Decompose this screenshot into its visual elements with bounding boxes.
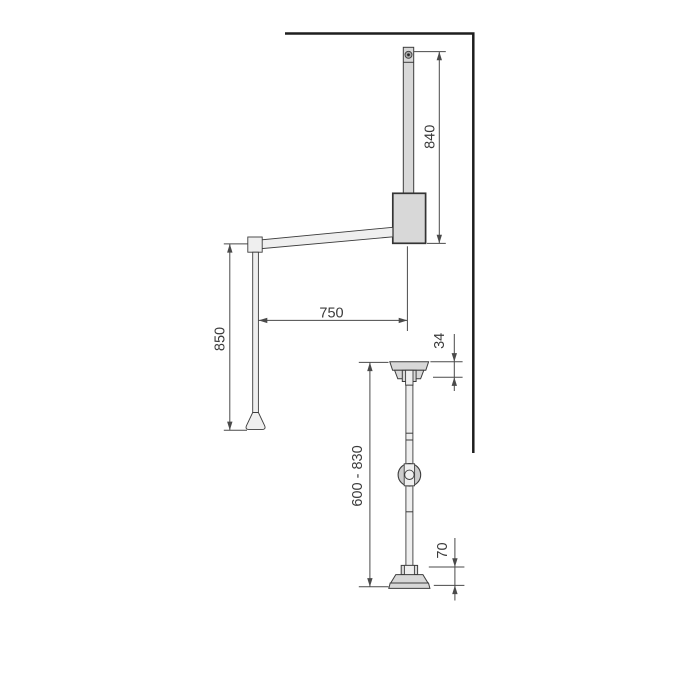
dim-840-arrow-up xyxy=(437,52,442,61)
dim-70-arrow-up xyxy=(452,585,457,594)
dim-34-arrow-down xyxy=(452,353,457,362)
upright-rod xyxy=(403,47,413,193)
dim-850-arrow-down xyxy=(227,422,232,431)
dim-850-arrow-up xyxy=(227,244,232,253)
dim-750-arrow-right xyxy=(399,318,408,323)
dim-70-arrow-down xyxy=(452,558,457,567)
foot-body xyxy=(391,575,428,583)
hanging-rod-end-cap xyxy=(246,413,265,430)
hanging-rod xyxy=(253,252,259,412)
dim-750: 750 xyxy=(259,246,408,331)
dim-34-arrow-up xyxy=(452,377,457,386)
dim-840-arrow-down xyxy=(437,235,442,244)
top-bracket-plate xyxy=(390,362,429,371)
dim-850-label: 850 xyxy=(212,327,228,351)
front-view xyxy=(389,362,430,589)
dim-750-arrow-left xyxy=(259,318,268,323)
technical-drawing: 840 850 750 xyxy=(0,0,700,700)
dim-600-830-arrow-up xyxy=(367,362,372,371)
dim-750-label: 750 xyxy=(319,306,343,322)
locking-knob-inner xyxy=(405,470,414,479)
dim-70: 70 xyxy=(429,538,465,601)
swing-arm xyxy=(262,227,393,248)
dim-840-label: 840 xyxy=(422,125,438,149)
dim-600-830-arrow-down xyxy=(367,578,372,587)
dim-600-830-label: 600 - 830 xyxy=(350,445,366,506)
drive-housing xyxy=(393,193,426,243)
foot-base-plate xyxy=(389,583,430,588)
dim-600-830: 600 - 830 xyxy=(350,362,389,586)
dim-70-label: 70 xyxy=(435,542,451,558)
drawing-canvas: 840 850 750 xyxy=(0,0,700,700)
dim-34: 34 xyxy=(430,333,462,391)
rod-mounting-hole-center-icon xyxy=(407,53,410,56)
dim-850: 850 xyxy=(212,244,247,430)
top-bracket-rod-socket xyxy=(406,370,413,385)
arm-end-pivot-block xyxy=(248,237,262,252)
dim-34-label: 34 xyxy=(432,333,448,349)
